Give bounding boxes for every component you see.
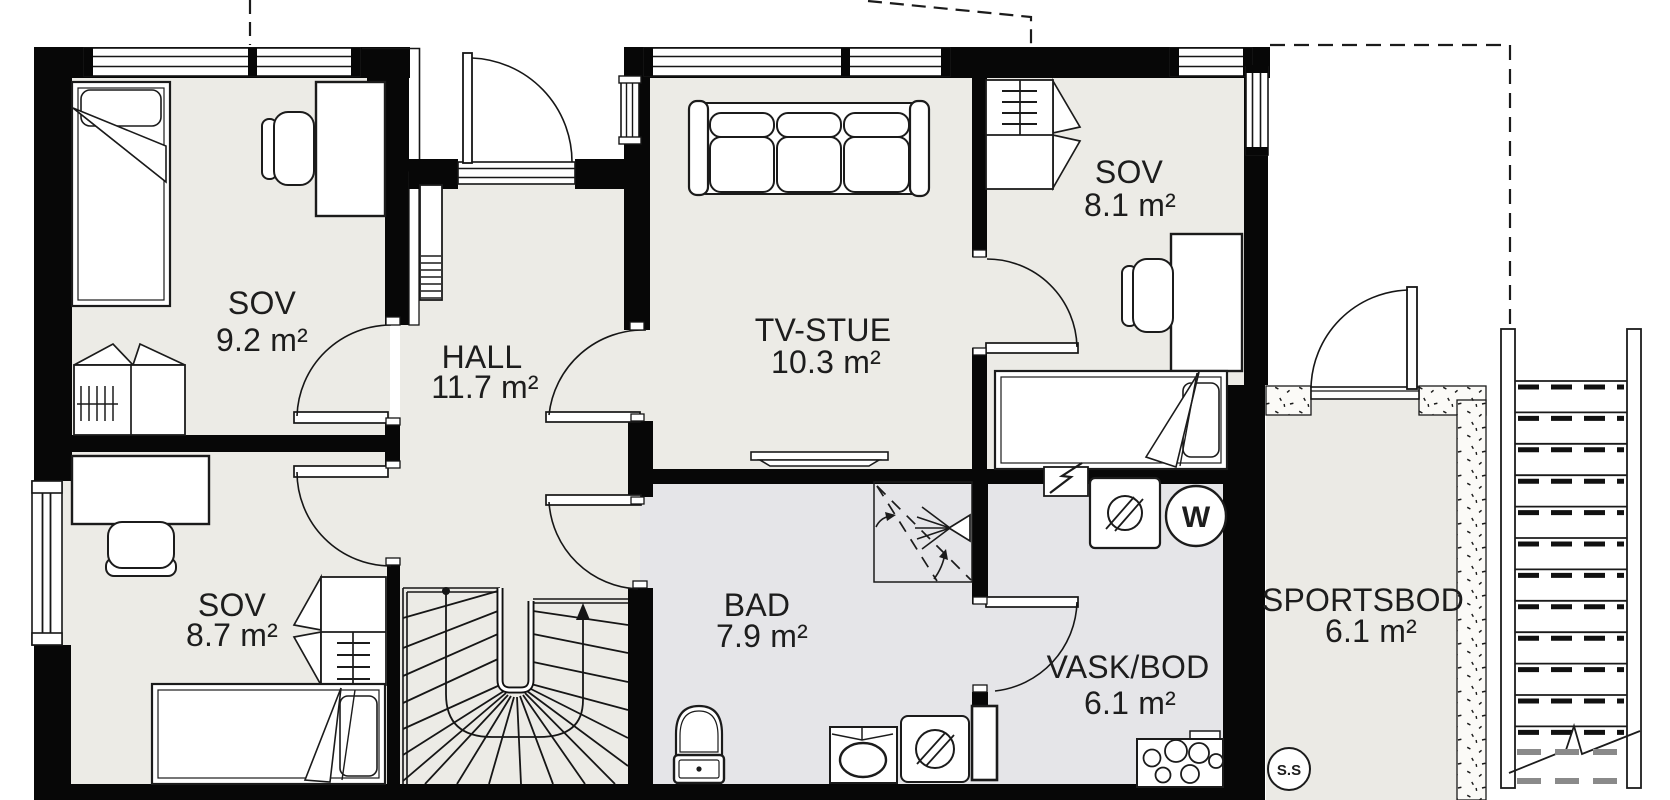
svg-text:SOV: SOV — [1095, 154, 1164, 190]
svg-text:11.7 m²: 11.7 m² — [431, 369, 539, 405]
svg-text:6.1 m²: 6.1 m² — [1084, 685, 1176, 721]
svg-text:6.1 m²: 6.1 m² — [1325, 613, 1417, 649]
svg-text:9.2 m²: 9.2 m² — [216, 322, 308, 358]
svg-text:10.3 m²: 10.3 m² — [771, 344, 881, 380]
svg-text:S.S: S.S — [1277, 762, 1301, 779]
svg-text:VASK/BOD: VASK/BOD — [1047, 649, 1210, 685]
svg-text:8.1 m²: 8.1 m² — [1084, 187, 1176, 223]
svg-text:8.7 m²: 8.7 m² — [186, 617, 278, 653]
svg-text:W: W — [1182, 501, 1211, 534]
svg-text:TV-STUE: TV-STUE — [755, 312, 892, 348]
svg-text:7.9 m²: 7.9 m² — [716, 618, 808, 654]
svg-text:SOV: SOV — [228, 285, 297, 321]
